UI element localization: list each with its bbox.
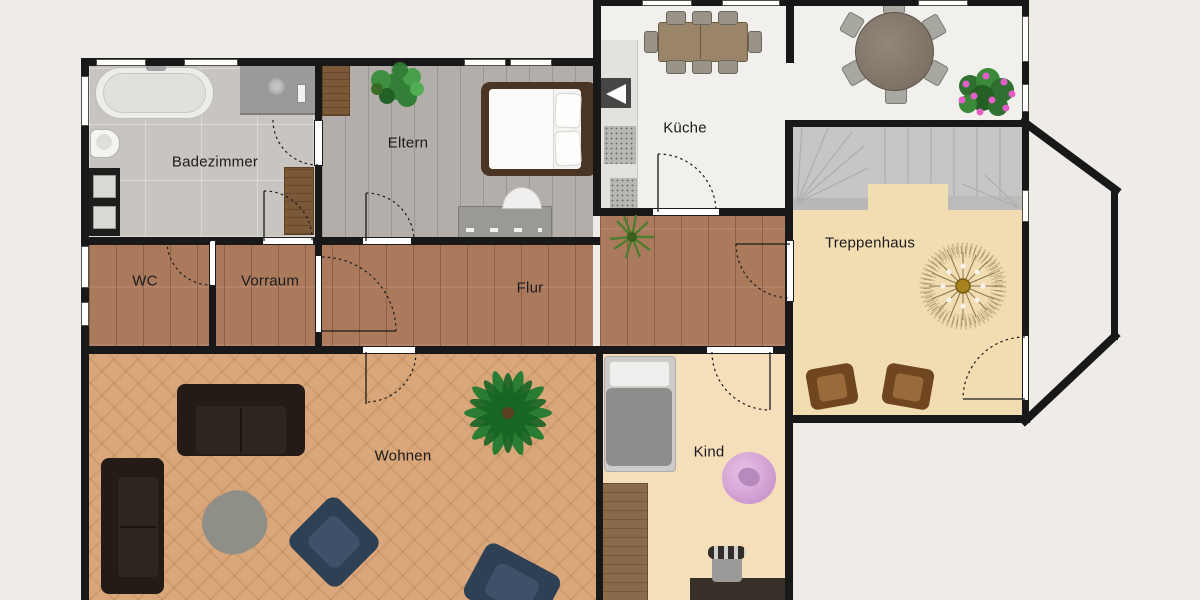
window [918,0,968,6]
kitchen-sink-unit [601,78,631,108]
window [464,59,506,66]
dining-chair [666,60,686,74]
wall [81,346,793,354]
single-bed-duvet [606,388,672,466]
door-badezimmer-eltern [314,120,323,166]
sofa-horizontal-seam [240,408,242,452]
label-flur: Flur [517,280,544,297]
kind-wardrobe [602,483,648,600]
dresser-handles [466,228,542,232]
sofa-vertical-seam [120,526,156,528]
dining-chair [644,31,658,53]
label-treppenhaus: Treppenhaus [825,235,915,252]
wall [786,0,794,63]
label-wc: WC [132,273,157,290]
door-flur-wohnen [362,346,416,354]
armchair-cushion [892,373,924,402]
dining-chair [718,11,738,25]
floor-plan: Badezimmer Eltern Küche WC Vorraum Flur … [0,0,1200,600]
kitchen-appliance-1 [604,126,636,164]
label-eltern: Eltern [388,135,428,152]
window [81,246,89,288]
room-kueche-passage [786,63,794,120]
wall [593,0,601,66]
dining-chair [692,60,712,74]
dining-chair [692,11,712,25]
label-kind: Kind [694,444,725,461]
shower-drain-icon [268,78,285,95]
shower-head-icon [297,84,306,103]
sink-basin-2 [93,206,116,229]
window [81,76,89,126]
wall [81,58,89,600]
window [96,59,146,66]
bathtub-basin [103,73,206,113]
wall [81,237,600,245]
window [510,59,552,66]
window [81,302,89,326]
label-wohnen: Wohnen [375,448,432,465]
armchair-cushion [816,373,848,402]
dining-table-seam [700,23,701,59]
door-treppenhaus-exit [1022,335,1029,401]
wall [785,120,1029,127]
stairs-tread-edge-left [793,198,868,210]
stairs-landing-notch [868,184,948,212]
pillow-2 [554,130,582,166]
wall [1111,186,1118,340]
label-badezimmer: Badezimmer [172,154,258,171]
door-wc-vorraum [209,240,216,286]
wall [596,346,603,600]
eltern-wardrobe [322,64,350,116]
door-vorraum-badezimmer [262,237,314,245]
wall [593,58,601,216]
door-flur-treppenhaus [786,240,794,302]
dining-chair [666,11,686,25]
diagonal-wall [1024,122,1116,421]
bathroom-wardrobe [284,167,314,235]
door-flur-kind [706,346,774,354]
dresser [458,206,552,239]
double-bed-duvet [489,89,554,169]
window [1022,190,1029,222]
kitchen-appliance-2 [610,178,637,210]
window [642,0,692,6]
desk-chair-back [708,546,746,559]
window [722,0,780,6]
window [1022,16,1029,62]
dining-chair [718,60,738,74]
door-flur-eltern [362,237,412,245]
label-kueche: Küche [663,120,707,137]
door-vorraum-flur [315,255,322,333]
dining-table [658,22,748,62]
dining-chair [748,31,762,53]
label-vorraum: Vorraum [241,273,299,290]
wall [785,120,793,600]
single-bed-pillow [609,361,670,387]
bidet-bowl [96,134,112,150]
sink-basin-1 [93,175,116,198]
wall [785,415,1030,423]
round-table [855,12,934,91]
room-flur-east [600,216,786,346]
door-flur-kueche [652,208,720,216]
window [1022,84,1029,112]
stairs-tread-edge-right [948,196,1022,210]
window [184,59,238,66]
pillow-1 [554,92,582,128]
